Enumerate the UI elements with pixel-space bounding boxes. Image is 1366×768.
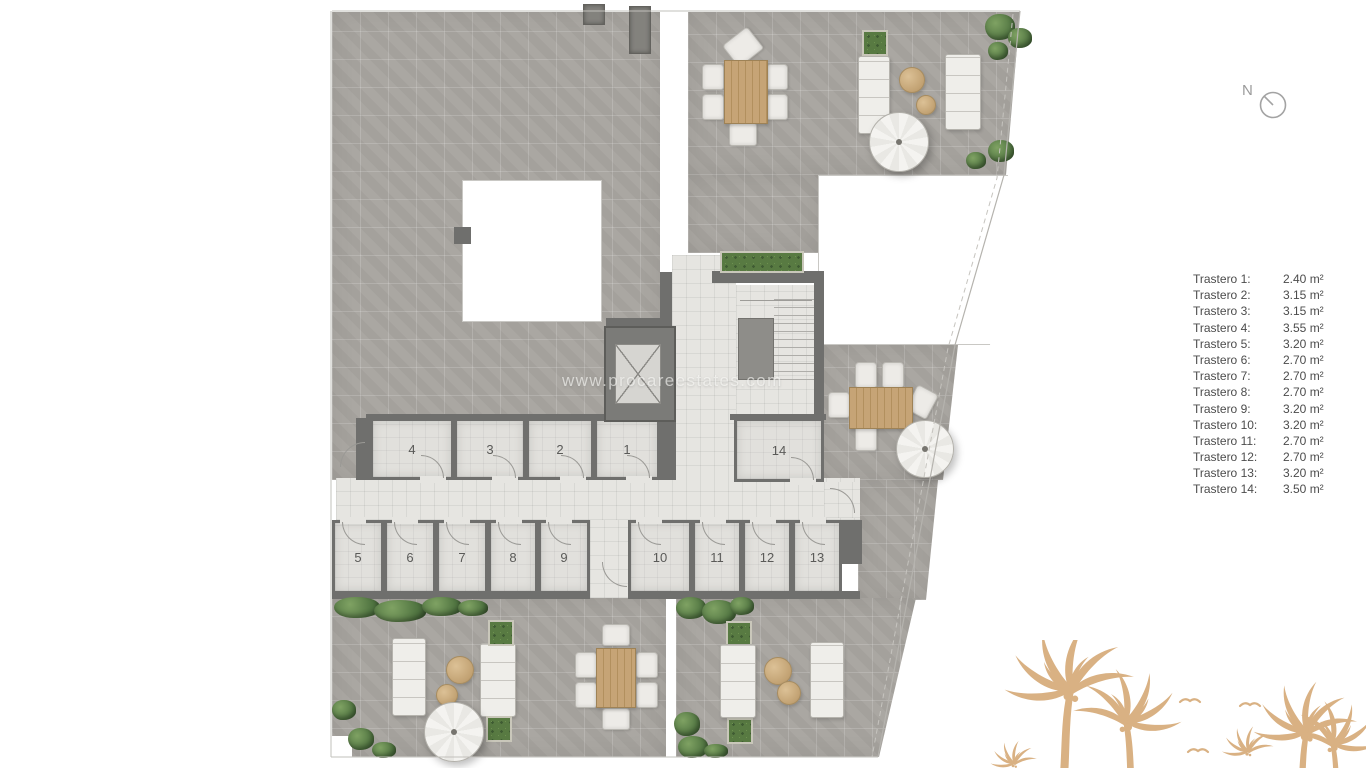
legend-row: Trastero 7:2.70 m² — [1193, 368, 1351, 384]
roof-vent — [583, 4, 605, 25]
room-number: 11 — [710, 550, 724, 565]
legend-value: 2.70 m² — [1283, 368, 1351, 384]
dining-table — [724, 60, 768, 124]
side-table — [899, 67, 925, 93]
legend-row: Trastero 9:3.20 m² — [1193, 401, 1351, 417]
roof-vent — [629, 6, 651, 54]
chair — [828, 392, 850, 418]
planter — [862, 30, 888, 56]
bush — [988, 140, 1014, 162]
room-7: 7 — [436, 520, 488, 594]
side-table — [916, 95, 936, 115]
open-patio-void — [818, 175, 1008, 345]
north-arrow: N — [1242, 82, 1290, 124]
elevator-top-wall — [606, 318, 672, 326]
legend-label: Trastero 14: — [1193, 481, 1283, 497]
stairs — [774, 292, 814, 380]
legend-value: 3.20 m² — [1283, 336, 1351, 352]
room-4: 4 — [370, 418, 454, 480]
legend-value: 3.50 m² — [1283, 481, 1351, 497]
legend-row: Trastero 10:3.20 m² — [1193, 417, 1351, 433]
sun-lounger — [480, 643, 516, 717]
room-number: 5 — [354, 550, 361, 565]
chair — [575, 652, 597, 678]
legend-label: Trastero 8: — [1193, 384, 1283, 400]
chair — [575, 682, 597, 708]
legend-row: Trastero 4:3.55 m² — [1193, 320, 1351, 336]
legend-value: 2.70 m² — [1283, 352, 1351, 368]
room-number: 7 — [458, 550, 465, 565]
side-table — [777, 681, 801, 705]
sun-lounger — [945, 54, 981, 130]
legend-label: Trastero 9: — [1193, 401, 1283, 417]
legend-row: Trastero 1:2.40 m² — [1193, 271, 1351, 287]
bush — [966, 152, 986, 169]
room-number: 1 — [623, 442, 630, 457]
room-1: 1 — [594, 418, 660, 480]
bush — [332, 700, 356, 720]
room-8: 8 — [488, 520, 538, 594]
terrace-right-strip — [858, 480, 938, 600]
room-number: 12 — [760, 550, 774, 565]
legend-value: 3.20 m² — [1283, 465, 1351, 481]
legend-row: Trastero 6:2.70 m² — [1193, 352, 1351, 368]
chair — [702, 64, 724, 90]
room-9: 9 — [538, 520, 590, 594]
bush — [348, 728, 374, 750]
core-corridor-floor — [672, 255, 736, 480]
bush — [422, 597, 462, 616]
room-number: 14 — [772, 443, 786, 458]
legend-label: Trastero 3: — [1193, 303, 1283, 319]
room-number: 10 — [653, 550, 667, 565]
bush — [674, 712, 700, 736]
side-table — [446, 656, 474, 684]
watermark: www.procareestates.com — [562, 371, 783, 391]
legend-label: Trastero 10: — [1193, 417, 1283, 433]
bush — [678, 736, 708, 758]
legend-label: Trastero 2: — [1193, 287, 1283, 303]
legend-row: Trastero 2:3.15 m² — [1193, 287, 1351, 303]
dining-table — [849, 387, 913, 429]
legend-label: Trastero 1: — [1193, 271, 1283, 287]
north-label: N — [1242, 82, 1253, 99]
parasol — [869, 112, 929, 172]
chair — [702, 94, 724, 120]
chair — [602, 624, 630, 646]
legend-row: Trastero 12:2.70 m² — [1193, 449, 1351, 465]
bush — [704, 744, 728, 758]
floor-plan-page: 4 3 2 1 14 5 6 7 8 9 10 11 12 13 — [0, 0, 1366, 768]
room-number: 6 — [406, 550, 413, 565]
bush — [730, 597, 754, 615]
planter — [486, 716, 512, 742]
chair — [636, 682, 658, 708]
room-3: 3 — [454, 418, 526, 480]
chair — [766, 64, 788, 90]
chair — [855, 362, 877, 388]
legend-value: 3.15 m² — [1283, 287, 1351, 303]
planter — [727, 718, 753, 744]
legend-label: Trastero 13: — [1193, 465, 1283, 481]
wall-piece — [658, 418, 676, 480]
skylight-hatch — [454, 227, 471, 244]
legend-label: Trastero 12: — [1193, 449, 1283, 465]
legend-value: 2.70 m² — [1283, 433, 1351, 449]
bush — [374, 600, 426, 622]
core-planter — [720, 251, 804, 273]
legend-label: Trastero 7: — [1193, 368, 1283, 384]
palm-trees-graphic — [980, 640, 1366, 768]
sun-lounger — [810, 642, 844, 718]
legend-row: Trastero 3:3.15 m² — [1193, 303, 1351, 319]
room-number: 8 — [509, 550, 516, 565]
legend-value: 2.70 m² — [1283, 449, 1351, 465]
room-number: 2 — [556, 442, 563, 457]
room-11: 11 — [692, 520, 742, 594]
wall-jog — [842, 520, 862, 564]
legend-row: Trastero 8:2.70 m² — [1193, 384, 1351, 400]
chair — [636, 652, 658, 678]
legend: Trastero 1:2.40 m² Trastero 2:3.15 m² Tr… — [1193, 271, 1351, 498]
room-14: 14 — [734, 418, 824, 482]
planter — [488, 620, 514, 646]
chair — [729, 122, 757, 146]
bush — [458, 600, 488, 616]
room-5: 5 — [332, 520, 384, 594]
chair — [602, 708, 630, 730]
legend-label: Trastero 5: — [1193, 336, 1283, 352]
room-number: 9 — [560, 550, 567, 565]
compass-icon — [1257, 90, 1289, 122]
room-number: 3 — [486, 442, 493, 457]
chair — [766, 94, 788, 120]
room-13: 13 — [792, 520, 842, 594]
skylight-void — [462, 180, 602, 322]
bush — [334, 597, 380, 618]
legend-label: Trastero 6: — [1193, 352, 1283, 368]
legend-label: Trastero 11: — [1193, 433, 1283, 449]
legend-value: 2.70 m² — [1283, 384, 1351, 400]
chair — [882, 362, 904, 388]
legend-row: Trastero 13:3.20 m² — [1193, 465, 1351, 481]
legend-row: Trastero 14:3.50 m² — [1193, 481, 1351, 497]
legend-value: 3.15 m² — [1283, 303, 1351, 319]
room-2: 2 — [526, 418, 594, 480]
legend-value: 3.55 m² — [1283, 320, 1351, 336]
room-number: 13 — [810, 550, 824, 565]
legend-label: Trastero 4: — [1193, 320, 1283, 336]
dining-table — [596, 648, 636, 708]
stair-handrail — [740, 300, 812, 301]
parasol — [424, 702, 484, 762]
parasol — [896, 420, 954, 478]
legend-value: 3.20 m² — [1283, 417, 1351, 433]
room-6: 6 — [384, 520, 436, 594]
sun-lounger — [720, 644, 756, 718]
legend-row: Trastero 11:2.70 m² — [1193, 433, 1351, 449]
legend-row: Trastero 5:3.20 m² — [1193, 336, 1351, 352]
terrace-top-right-ext — [688, 175, 818, 253]
room-12: 12 — [742, 520, 792, 594]
bush — [372, 742, 396, 758]
bush — [988, 42, 1008, 60]
legend-value: 2.40 m² — [1283, 271, 1351, 287]
sun-lounger — [392, 638, 426, 716]
legend-value: 3.20 m² — [1283, 401, 1351, 417]
main-corridor-floor — [336, 478, 860, 520]
bush — [1008, 28, 1032, 48]
room-number: 4 — [408, 442, 415, 457]
room-10: 10 — [628, 520, 692, 594]
